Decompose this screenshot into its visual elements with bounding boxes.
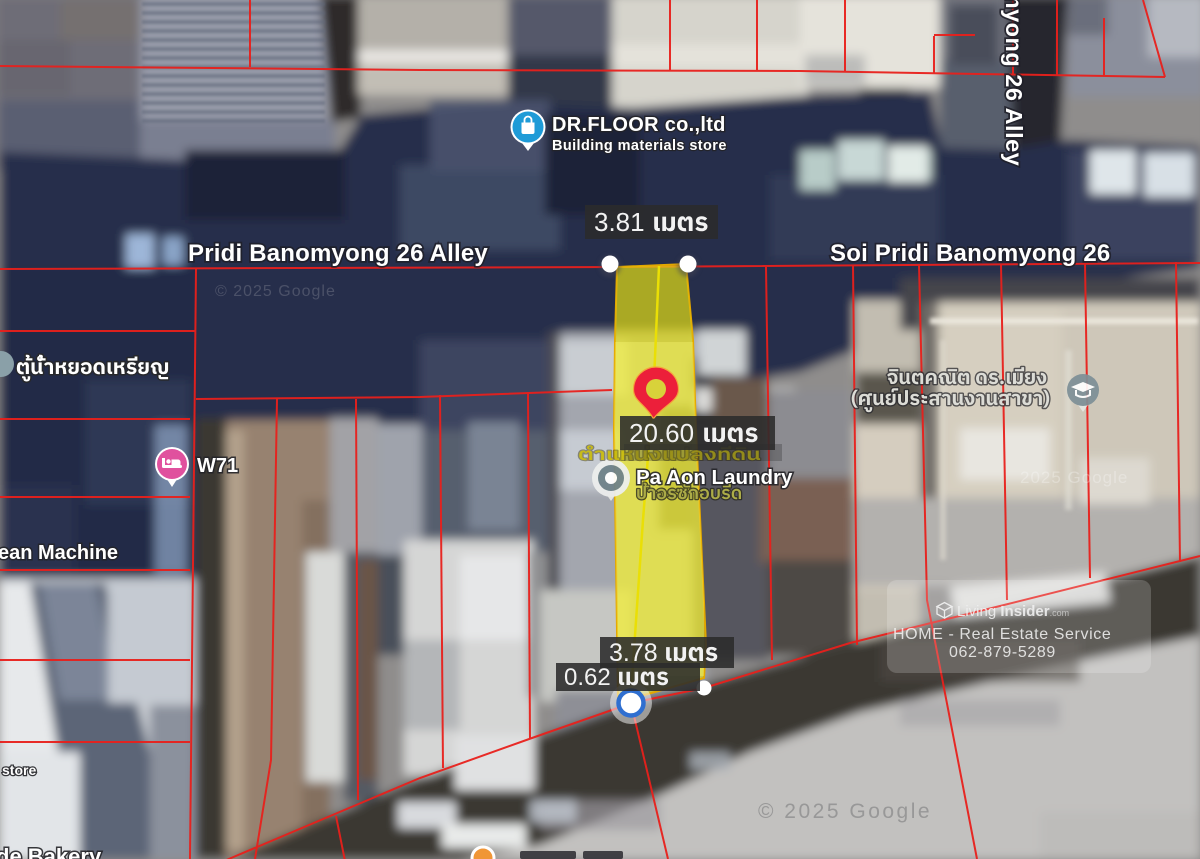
svg-text:© 2025 Google: © 2025 Google [758, 800, 932, 823]
svg-text:Soi Pridi Banomyong 26: Soi Pridi Banomyong 26 [830, 240, 1110, 267]
svg-text:Building materials store: Building materials store [552, 138, 727, 154]
svg-text:store: store [2, 762, 36, 778]
svg-text:3.81: 3.81 [594, 207, 645, 237]
svg-text:2025 Google: 2025 Google [1020, 468, 1128, 487]
svg-text:20.60: 20.60 [629, 418, 694, 448]
svg-text:© 2025 Google: © 2025 Google [215, 283, 336, 300]
svg-text:HOME - Real Estate Service: HOME - Real Estate Service [893, 626, 1111, 643]
svg-text:062-879-5289: 062-879-5289 [949, 644, 1056, 661]
svg-text:nomyong 26 Alley: nomyong 26 Alley [1001, 0, 1027, 166]
svg-text:de Bakery: de Bakery [0, 844, 102, 859]
svg-text:ean Machine: ean Machine [0, 542, 118, 564]
svg-text:Pridi Banomyong 26 Alley: Pridi Banomyong 26 Alley [188, 240, 488, 267]
svg-text:Pa Aon Laundry: Pa Aon Laundry [636, 466, 793, 489]
svg-text:3.78: 3.78 [609, 639, 658, 667]
svg-text:DR.FLOOR co.,ltd: DR.FLOOR co.,ltd [552, 114, 726, 136]
svg-text:0.62: 0.62 [564, 664, 611, 691]
svg-text:W71: W71 [197, 455, 238, 477]
